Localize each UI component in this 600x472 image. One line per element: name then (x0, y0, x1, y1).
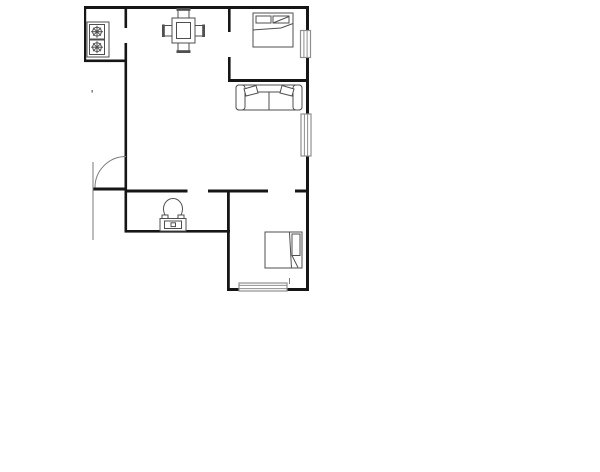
stove-part (96, 46, 99, 49)
dining-table-part (177, 8, 191, 11)
bedroom1-window-frame (301, 31, 311, 58)
living-room-window (301, 114, 311, 156)
bedroom2-window-frame (239, 283, 287, 291)
hall-wall-left-segment (125, 190, 188, 193)
stove (87, 22, 109, 57)
door-swing-arc (95, 157, 126, 188)
kitchen-right-wall-upper (125, 6, 128, 28)
dining-table-part (195, 26, 203, 37)
dining-table-part (164, 26, 172, 37)
marks-layer (92, 90, 290, 284)
floor-plan-canvas (0, 0, 600, 472)
dining-table-part (202, 25, 205, 38)
bed-1 (253, 13, 293, 47)
dining-table-part (162, 25, 165, 38)
toilet-part (171, 223, 176, 227)
exterior-right-wall-upper (306, 6, 309, 31)
entry-door (93, 157, 126, 241)
bed-1-part (256, 16, 271, 23)
living-left-wall (125, 43, 128, 233)
bedroom2-window (239, 283, 287, 291)
dining-table-part (178, 10, 189, 18)
exterior-right-wall-lower (306, 155, 309, 291)
exterior-top-wall (84, 6, 309, 9)
sofa (236, 85, 302, 110)
dining-table-part (177, 50, 191, 53)
stray-mark (92, 90, 93, 93)
dining-table (162, 8, 205, 53)
hall-wall-mid-segment (208, 190, 268, 193)
entry-door-threshold (93, 188, 127, 191)
kitchen-left-wall (84, 6, 86, 62)
stove-part (96, 30, 99, 33)
bedroom1-bottom-wall (228, 79, 309, 82)
exterior-right-wall-mid (306, 57, 309, 115)
bed-2 (265, 232, 302, 268)
bedroom1-left-wall-upper (228, 6, 231, 32)
dining-table-part (178, 43, 189, 51)
bedroom2-left-wall (227, 190, 230, 292)
bedroom1-window (301, 31, 311, 58)
furniture-layer (87, 8, 302, 268)
bed-2-part (292, 234, 300, 256)
living-room-window-frame (301, 114, 311, 156)
floor-plan-page (0, 0, 600, 472)
toilet (160, 199, 186, 232)
kitchen-bottom-wall (84, 60, 127, 63)
dining-table-part (177, 23, 191, 39)
bedroom1-left-wall-lower (228, 57, 231, 82)
